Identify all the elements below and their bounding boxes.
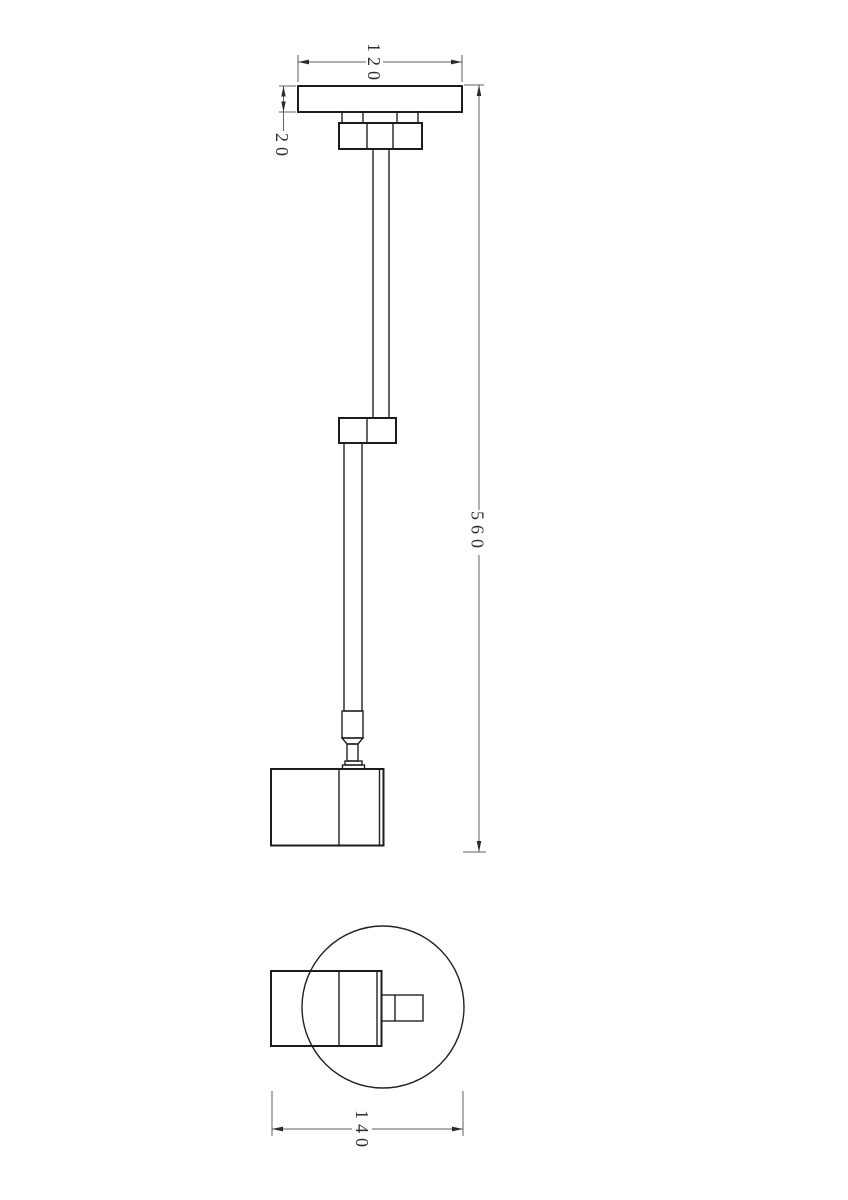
upper-rod bbox=[373, 149, 389, 418]
technical-drawing: 120 20 bbox=[0, 0, 848, 1200]
fitting-sleeve bbox=[342, 711, 363, 738]
lamp-head-side bbox=[271, 769, 384, 846]
arrowhead-right bbox=[451, 60, 462, 65]
arrowhead-up bbox=[477, 85, 482, 96]
plate-thickness-label: 20 bbox=[272, 133, 292, 161]
canopy-outline bbox=[339, 123, 422, 149]
dim-plate-thickness: 20 bbox=[272, 86, 296, 161]
rod-connector bbox=[339, 418, 396, 443]
overall-width-label: 140 bbox=[352, 1110, 372, 1152]
arrowhead-down bbox=[281, 102, 285, 113]
dim-plate-width: 120 bbox=[298, 43, 462, 85]
overall-height-label: 560 bbox=[468, 511, 488, 553]
drawing-canvas: 120 20 bbox=[0, 0, 848, 1200]
bottom-circle bbox=[302, 926, 464, 1088]
fitting-neck bbox=[347, 744, 358, 761]
lamp-head-bottom bbox=[271, 971, 382, 1046]
arrowhead-left bbox=[298, 60, 309, 65]
stub-outline bbox=[382, 995, 424, 1021]
lamp-body-outline bbox=[271, 971, 382, 1046]
ceiling-plate bbox=[298, 86, 462, 112]
canopy-block bbox=[339, 123, 422, 149]
side-view: 120 20 bbox=[271, 43, 488, 852]
arrowhead-left bbox=[272, 1127, 283, 1132]
dim-overall-width: 140 bbox=[272, 1091, 463, 1152]
dim-overall-height: 560 bbox=[463, 85, 488, 852]
arrowhead-down bbox=[477, 841, 482, 852]
mounting-nub-left bbox=[342, 112, 363, 123]
rod-end-fitting bbox=[342, 711, 365, 769]
fitting-taper bbox=[342, 738, 363, 744]
arrowhead-up bbox=[281, 86, 285, 97]
swivel-stub bbox=[382, 995, 424, 1021]
lower-rod bbox=[344, 443, 362, 711]
plate-width-label: 120 bbox=[364, 43, 384, 85]
bottom-view: 140 bbox=[271, 926, 464, 1152]
lamp-body-outline bbox=[271, 769, 384, 846]
mounting-nub-right bbox=[397, 112, 418, 123]
arrowhead-right bbox=[452, 1127, 463, 1132]
